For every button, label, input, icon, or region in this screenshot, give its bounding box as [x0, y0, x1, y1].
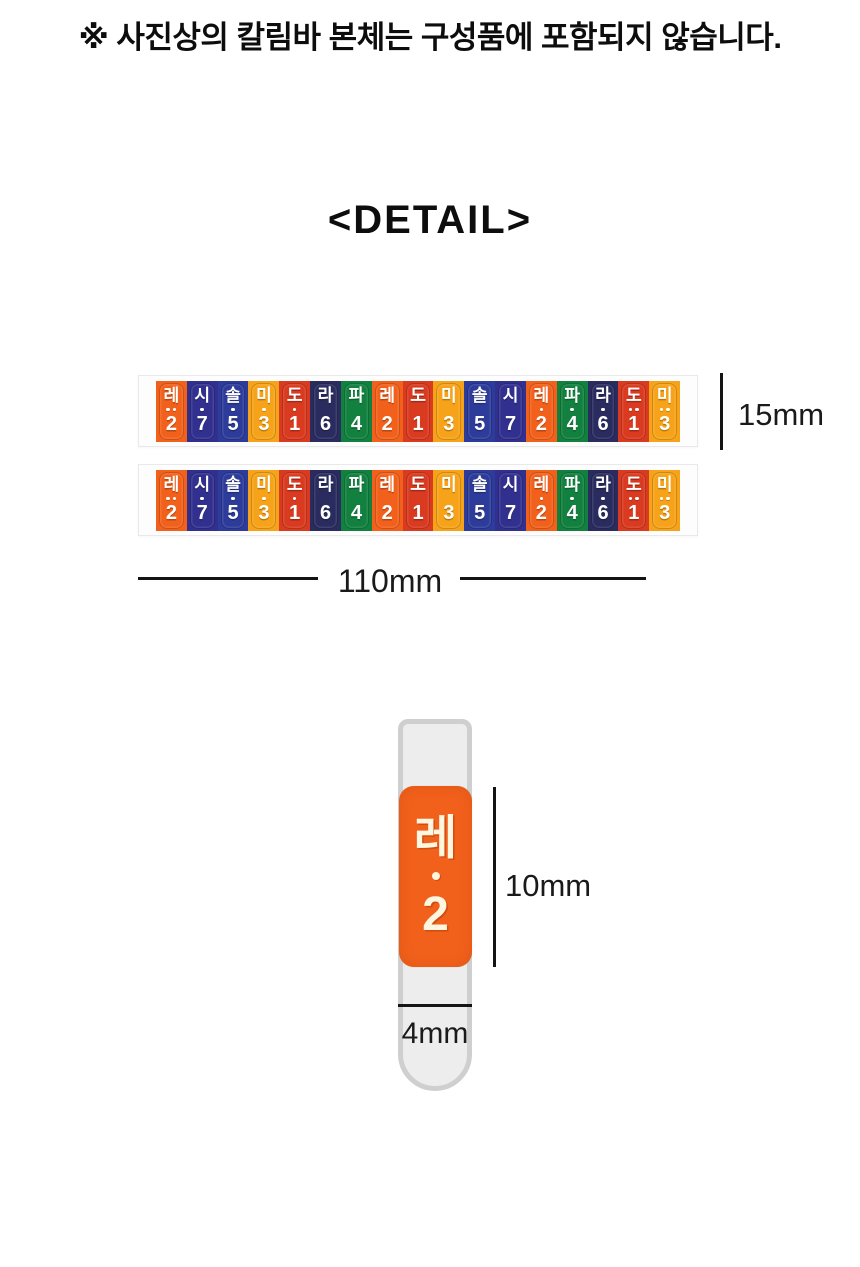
note-number: 4 [567, 414, 578, 435]
note-number: 1 [412, 414, 423, 435]
note-syllable: 시 [194, 387, 210, 405]
sticker-tab-4: 미3 [248, 381, 279, 442]
note-number: 3 [443, 503, 454, 524]
octave-dots [570, 495, 574, 502]
note-number: 7 [197, 503, 208, 524]
sticker-tab-17: 미3 [649, 470, 680, 531]
dimension-label-strip-length: 110mm [329, 563, 451, 600]
dimension-label-strip-height: 15mm [738, 397, 824, 433]
note-syllable: 미 [657, 387, 673, 405]
octave-dots [200, 406, 204, 413]
note-number: 2 [536, 414, 547, 435]
note-syllable: 파 [349, 387, 365, 405]
note-syllable: 도 [410, 476, 426, 494]
note-number: 2 [166, 503, 177, 524]
note-syllable: 도 [287, 476, 303, 494]
octave-dot [432, 872, 440, 880]
note-number: 3 [258, 503, 269, 524]
note-number: 1 [628, 503, 639, 524]
note-syllable: 파 [349, 476, 365, 494]
note-number: 2 [382, 414, 393, 435]
sticker-tab-16: 도1 [618, 470, 649, 531]
octave-dots [570, 406, 574, 413]
note-number: 5 [474, 414, 485, 435]
sticker-tab-14: 파4 [557, 381, 588, 442]
sticker-strip-1: 레2시7솔5미3도1라6파4레2도1미3솔5시7레2파4라6도1미3 [138, 375, 698, 447]
note-number: 3 [443, 414, 454, 435]
note-syllable: 도 [626, 476, 642, 494]
notice-text: ※ 사진상의 칼림바 본체는 구성품에 포함되지 않습니다. [0, 12, 860, 57]
octave-dots [629, 406, 639, 413]
note-syllable: 라 [595, 476, 611, 494]
note-syllable: 시 [503, 387, 519, 405]
sticker-tab-3: 솔5 [218, 381, 249, 442]
note-syllable: 레 [164, 387, 180, 405]
note-number: 4 [567, 503, 578, 524]
note-number: 2 [422, 891, 449, 939]
detail-heading: <DETAIL> [0, 198, 860, 243]
sticker-strip-row: 레2시7솔5미3도1라6파4레2도1미3솔5시7레2파4라6도1미3 [156, 381, 680, 442]
sticker-tab-16: 도1 [618, 381, 649, 442]
octave-dots [200, 495, 204, 502]
note-number: 2 [382, 503, 393, 524]
dimension-line-strip-length-right [460, 577, 646, 580]
single-sticker: 레 2 [399, 786, 472, 967]
note-syllable: 도 [410, 387, 426, 405]
note-number: 6 [320, 503, 331, 524]
note-syllable: 시 [503, 476, 519, 494]
note-number: 6 [320, 414, 331, 435]
note-syllable: 라 [318, 387, 334, 405]
sticker-tab-7: 파4 [341, 381, 372, 442]
octave-dots [660, 406, 670, 413]
octave-dots [293, 406, 297, 413]
octave-dots [540, 495, 544, 502]
note-syllable: 라 [595, 387, 611, 405]
sticker-tab-11: 솔5 [464, 381, 495, 442]
octave-dots [540, 406, 544, 413]
note-syllable: 솔 [472, 387, 488, 405]
sticker-tab-13: 레2 [526, 381, 557, 442]
octave-dots [166, 495, 176, 502]
note-number: 3 [258, 414, 269, 435]
note-number: 1 [289, 414, 300, 435]
sticker-tab-11: 솔5 [464, 470, 495, 531]
note-number: 2 [166, 414, 177, 435]
note-number: 3 [659, 503, 670, 524]
sticker-tab-10: 미3 [433, 470, 464, 531]
octave-dots [231, 406, 235, 413]
note-number: 6 [597, 503, 608, 524]
sticker-tab-14: 파4 [557, 470, 588, 531]
sticker-tab-1: 레2 [156, 470, 187, 531]
octave-dots [629, 495, 639, 502]
sticker-tab-8: 레2 [372, 470, 403, 531]
sticker-tab-5: 도1 [279, 381, 310, 442]
octave-dots [601, 406, 605, 413]
dimension-line-sticker-height [493, 787, 496, 967]
note-number: 1 [289, 503, 300, 524]
sticker-tab-12: 시7 [495, 381, 526, 442]
note-number: 2 [536, 503, 547, 524]
note-number: 4 [351, 414, 362, 435]
note-number: 6 [597, 414, 608, 435]
note-syllable: 레 [414, 814, 457, 861]
sticker-tab-9: 도1 [403, 470, 434, 531]
note-number: 5 [228, 414, 239, 435]
note-number: 4 [351, 503, 362, 524]
octave-dots [293, 495, 297, 502]
note-number: 7 [505, 503, 516, 524]
sticker-tab-2: 시7 [187, 470, 218, 531]
dimension-line-sticker-width [398, 1004, 472, 1007]
note-number: 7 [197, 414, 208, 435]
note-number: 3 [659, 414, 670, 435]
sticker-tab-17: 미3 [649, 381, 680, 442]
dimension-label-sticker-height: 10mm [505, 868, 591, 904]
note-syllable: 도 [287, 387, 303, 405]
note-syllable: 솔 [225, 387, 241, 405]
dimension-line-strip-length-left [138, 577, 318, 580]
note-syllable: 미 [256, 476, 272, 494]
sticker-tab-15: 라6 [588, 470, 619, 531]
octave-dots [166, 406, 176, 413]
note-syllable: 도 [626, 387, 642, 405]
note-syllable: 레 [534, 476, 550, 494]
note-syllable: 미 [441, 387, 457, 405]
note-syllable: 솔 [472, 476, 488, 494]
sticker-tab-12: 시7 [495, 470, 526, 531]
sticker-tab-2: 시7 [187, 381, 218, 442]
sticker-tab-6: 라6 [310, 470, 341, 531]
sticker-tab-13: 레2 [526, 470, 557, 531]
note-number: 7 [505, 414, 516, 435]
note-number: 1 [412, 503, 423, 524]
sticker-tab-3: 솔5 [218, 470, 249, 531]
sticker-tab-10: 미3 [433, 381, 464, 442]
note-number: 5 [474, 503, 485, 524]
octave-dots [231, 495, 235, 502]
sticker-tab-5: 도1 [279, 470, 310, 531]
note-number: 5 [228, 503, 239, 524]
sticker-tab-15: 라6 [588, 381, 619, 442]
note-number: 1 [628, 414, 639, 435]
octave-dots [601, 495, 605, 502]
sticker-tab-1: 레2 [156, 381, 187, 442]
note-syllable: 라 [318, 476, 334, 494]
sticker-tab-4: 미3 [248, 470, 279, 531]
sticker-tab-6: 라6 [310, 381, 341, 442]
dimension-label-sticker-width: 4mm [393, 1017, 477, 1051]
note-syllable: 미 [256, 387, 272, 405]
sticker-tab-9: 도1 [403, 381, 434, 442]
product-detail-image: ※ 사진상의 칼림바 본체는 구성품에 포함되지 않습니다. <DETAIL> … [0, 0, 860, 1267]
note-syllable: 파 [564, 387, 580, 405]
note-syllable: 레 [534, 387, 550, 405]
sticker-strip-2: 레2시7솔5미3도1라6파4레2도1미3솔5시7레2파4라6도1미3 [138, 464, 698, 536]
note-syllable: 미 [441, 476, 457, 494]
octave-dots [262, 406, 266, 413]
note-syllable: 레 [379, 476, 395, 494]
octave-dots [660, 495, 670, 502]
octave-dots [262, 495, 266, 502]
note-syllable: 시 [194, 476, 210, 494]
note-syllable: 파 [564, 476, 580, 494]
note-syllable: 미 [657, 476, 673, 494]
sticker-strip-row: 레2시7솔5미3도1라6파4레2도1미3솔5시7레2파4라6도1미3 [156, 470, 680, 531]
note-syllable: 레 [164, 476, 180, 494]
sticker-tab-7: 파4 [341, 470, 372, 531]
dimension-line-strip-height [720, 373, 723, 450]
note-syllable: 솔 [225, 476, 241, 494]
note-syllable: 레 [379, 387, 395, 405]
sticker-tab-8: 레2 [372, 381, 403, 442]
